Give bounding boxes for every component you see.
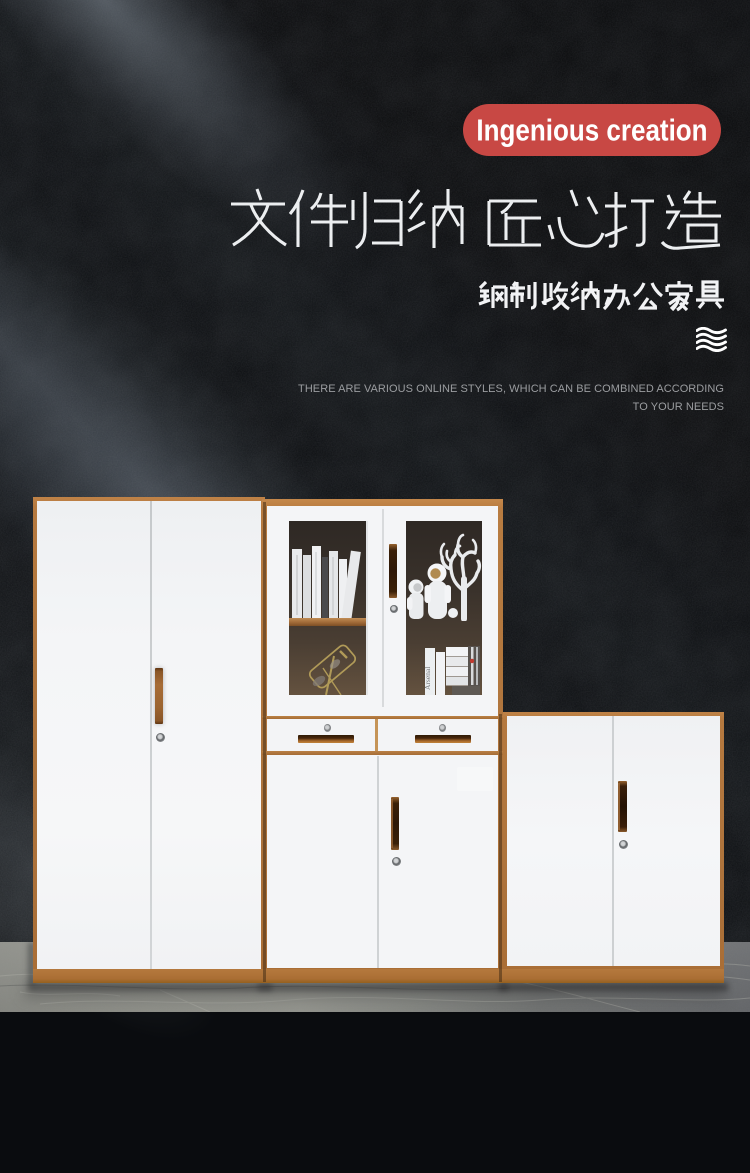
svg-text:Arsenal: Arsenal xyxy=(423,667,432,690)
